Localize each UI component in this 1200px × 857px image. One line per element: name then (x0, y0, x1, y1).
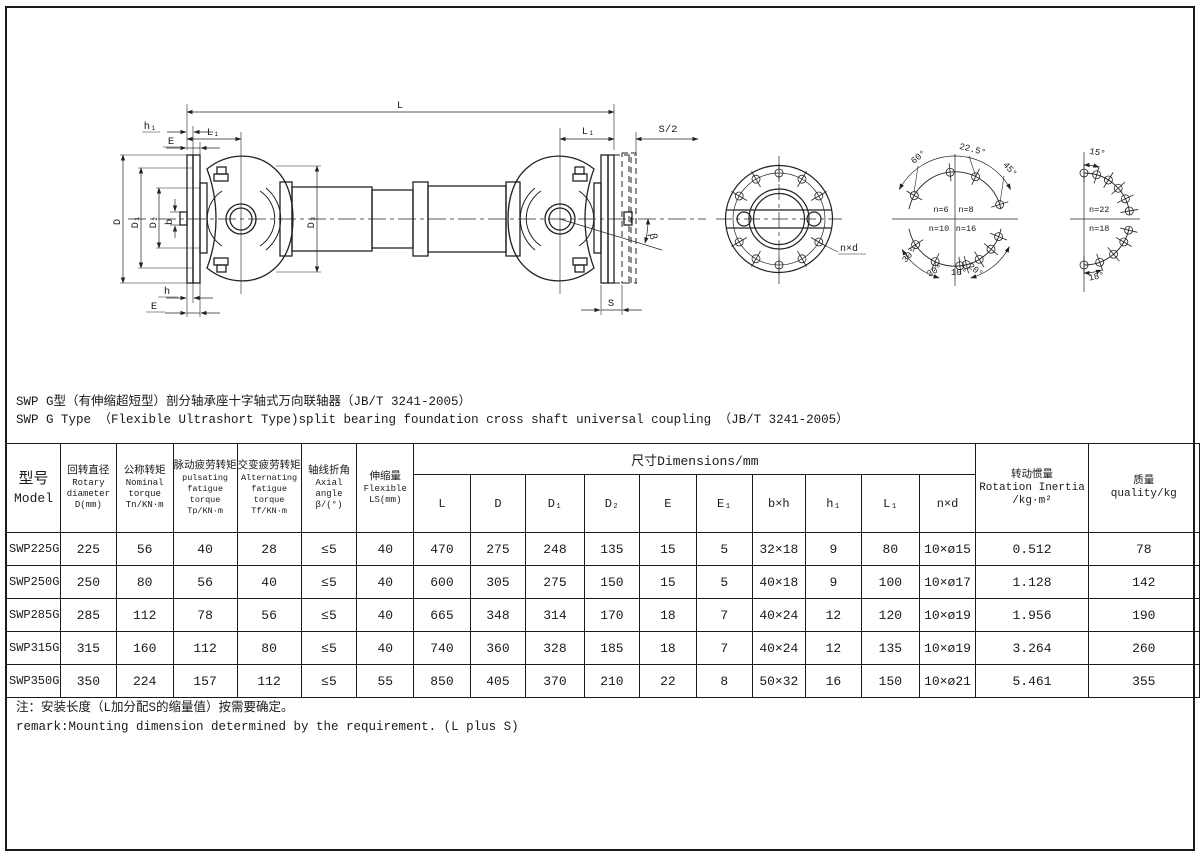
table-cell: 470 (414, 533, 471, 566)
table-cell: 50×32 (752, 665, 805, 698)
dim-label-D2: D₂ (148, 216, 160, 229)
dim-label-h: h (164, 286, 170, 298)
table-cell: 18 (640, 632, 696, 665)
table-cell: 55 (357, 665, 414, 698)
table-cell: 10×ø19 (919, 599, 976, 632)
table-cell: 56 (237, 599, 301, 632)
table-cell: 0.512 (976, 533, 1088, 566)
header-en: pulsating fatigue torque (174, 473, 237, 506)
table-cell: 15 (640, 566, 696, 599)
table-cell: 275 (470, 533, 526, 566)
table-cell: 225 (60, 533, 116, 566)
col-header-axial-angle: 轴线折角 Axial angle β/(°) (301, 444, 357, 533)
table-cell: 40 (357, 566, 414, 599)
table-cell: 9 (805, 533, 861, 566)
table-cell: SWP315G (7, 632, 61, 665)
header-zh: 轴线折角 (302, 465, 357, 478)
table-cell: 740 (414, 632, 471, 665)
table-cell: 285 (60, 599, 116, 632)
joint-centerlines (241, 128, 560, 294)
table-cell: 5 (696, 533, 752, 566)
table-cell: 9 (805, 566, 861, 599)
angle-label-45: 45° (1000, 160, 1018, 179)
table-cell: 160 (116, 632, 173, 665)
table-cell: 40 (237, 566, 301, 599)
header-en: Nominal torque (117, 478, 173, 500)
col-header-L1: L₁ (862, 475, 919, 533)
dim-label-S-half: S/2 (659, 124, 678, 136)
header-en: Axial angle (302, 478, 357, 500)
table-row: SWP315G31516011280≤54074036032818518740×… (7, 632, 1200, 665)
table-cell: SWP350G (7, 665, 61, 698)
table-cell: 370 (526, 665, 584, 698)
table-cell: 157 (173, 665, 237, 698)
table-cell: 328 (526, 632, 584, 665)
remark-block: 注：安装长度（L加分配S的缩量值）按需要确定。 remark:Mounting … (16, 699, 519, 737)
col-header-D2: D₂ (584, 475, 640, 533)
col-header-D1: D₁ (526, 475, 584, 533)
table-cell: 348 (470, 599, 526, 632)
remark-en: remark:Mounting dimension determined by … (16, 718, 519, 737)
table-cell: 10×ø19 (919, 632, 976, 665)
col-header-bxh: b×h (752, 475, 805, 533)
table-cell: 112 (116, 599, 173, 632)
title-zh: SWP G型（有伸缩超短型）剖分轴承座十字轴式万向联轴器（JB/T 3241-2… (16, 393, 849, 411)
table-cell: SWP285G (7, 599, 61, 632)
header-zh: 公称转矩 (117, 465, 173, 478)
table-cell: 142 (1088, 566, 1199, 599)
table-cell: 3.264 (976, 632, 1088, 665)
header-sym: LS(mm) (357, 495, 413, 506)
centerline (1070, 152, 1140, 292)
bolt-angle-view-2: 15° n=22 n=18 18° (1070, 147, 1140, 292)
count-label-n8: n=8 (958, 205, 973, 215)
col-header-rotation-inertia: 转动惯量 Rotation Inertia /kg·m² (976, 444, 1088, 533)
table-cell: 100 (862, 566, 919, 599)
header-zh: 脉动疲劳转矩 (174, 460, 237, 473)
col-header-pulsating-torque: 脉动疲劳转矩 pulsating fatigue torque Tp/KN·m (173, 444, 237, 533)
dim-label-L1-left: L₁ (207, 127, 220, 139)
col-header-h1: h₁ (805, 475, 861, 533)
table-body: SWP225G225564028≤54047027524813515532×18… (7, 533, 1200, 698)
header-zh: 转动惯量 (976, 469, 1087, 482)
table-row: SWP285G2851127856≤54066534831417018740×2… (7, 599, 1200, 632)
table-cell: 28 (237, 533, 301, 566)
table-row: SWP350G350224157112≤55585040537021022850… (7, 665, 1200, 698)
header-en: Flexible (357, 484, 413, 495)
header-zh: 质量 (1089, 475, 1199, 488)
table-cell: 18 (640, 599, 696, 632)
table-cell: 260 (1088, 632, 1199, 665)
table-cell: 12 (805, 632, 861, 665)
table-cell: 78 (1088, 533, 1199, 566)
col-header-rotary-diameter: 回转直径 Rotary diameter D(mm) (60, 444, 116, 533)
bolt-angle-view-1: 22.5° 60° 45° n=6 n=8 n=10 n=16 30° 30° … (892, 142, 1019, 286)
table-cell: 360 (470, 632, 526, 665)
header-zh: 回转直径 (61, 465, 116, 478)
angle-label-22-5: 22.5° (958, 142, 987, 158)
header-sym: Tp/KN·m (174, 506, 237, 517)
table-cell: 315 (60, 632, 116, 665)
table-cell: 78 (173, 599, 237, 632)
header-sym: β/(°) (302, 500, 357, 511)
table-cell: 7 (696, 632, 752, 665)
drawing-title-block: SWP G型（有伸缩超短型）剖分轴承座十字轴式万向联轴器（JB/T 3241-2… (16, 393, 849, 429)
table-cell: 850 (414, 665, 471, 698)
table-cell: 120 (862, 599, 919, 632)
table-cell: 248 (526, 533, 584, 566)
table-cell: 80 (116, 566, 173, 599)
extension-lines (120, 104, 636, 317)
table-cell: 10×ø17 (919, 566, 976, 599)
dim-label-b: b (164, 219, 176, 225)
table-cell: 40 (357, 533, 414, 566)
table-cell: 405 (470, 665, 526, 698)
dim-label-L: L (397, 100, 403, 112)
table-cell: 40 (357, 599, 414, 632)
table-cell: 40×24 (752, 599, 805, 632)
dim-label-E-bottom: E (151, 301, 157, 313)
col-header-flexible: 伸缩量 Flexible LS(mm) (357, 444, 414, 533)
table-cell: 314 (526, 599, 584, 632)
table-cell: 5 (696, 566, 752, 599)
dim-label-D3: D₃ (306, 216, 318, 229)
table-cell: 665 (414, 599, 471, 632)
angle-label-10: 10° (951, 268, 967, 278)
angle-label-30a: 30° (900, 246, 918, 265)
col-header-E: E (640, 475, 696, 533)
header-zh: 型号 (7, 470, 60, 490)
count-label-n18: n=18 (1089, 224, 1109, 234)
table-cell: 250 (60, 566, 116, 599)
table-cell: SWP250G (7, 566, 61, 599)
main-view: L h₁ L₁ E D D₁ D₂ b D₃ h E L₁ S/2 S β (112, 100, 706, 317)
table-cell: 185 (584, 632, 640, 665)
table-cell: 150 (584, 566, 640, 599)
count-label-n22: n=22 (1089, 205, 1109, 215)
col-header-quality: 质量 quality/kg (1088, 444, 1199, 533)
table-cell: 135 (862, 632, 919, 665)
header-zh: 伸缩量 (357, 471, 413, 484)
spec-table: 型号 Model 回转直径 Rotary diameter D(mm) 公称转矩… (6, 443, 1200, 698)
col-header-model: 型号 Model (7, 444, 61, 533)
table-cell: 224 (116, 665, 173, 698)
phantom-flange (614, 153, 637, 283)
header-sym: D(mm) (61, 500, 116, 511)
table-cell: 190 (1088, 599, 1199, 632)
header-sym: Tf/KN·m (238, 506, 301, 517)
col-header-L: L (414, 475, 471, 533)
table-cell: 150 (862, 665, 919, 698)
table-cell: 112 (173, 632, 237, 665)
dim-label-D1: D₁ (130, 216, 142, 229)
dim-label-nxd: n×d (840, 243, 858, 255)
table-cell: ≤5 (301, 665, 357, 698)
col-header-E1: E₁ (696, 475, 752, 533)
remark-zh: 注：安装长度（L加分配S的缩量值）按需要确定。 (16, 699, 519, 718)
header-zh: 交变疲劳转矩 (238, 460, 301, 473)
table-row: SWP250G250805640≤54060030527515015540×18… (7, 566, 1200, 599)
datasheet-page: L h₁ L₁ E D D₁ D₂ b D₃ h E L₁ S/2 S β (0, 0, 1200, 857)
dim-label-S: S (608, 298, 614, 310)
table-cell: 7 (696, 599, 752, 632)
header-en: Model (7, 490, 60, 507)
table-cell: 170 (584, 599, 640, 632)
count-label-n6: n=6 (933, 205, 948, 215)
table-cell: ≤5 (301, 566, 357, 599)
title-en: SWP G Type （Flexible Ultrashort Type)spl… (16, 411, 849, 429)
table-cell: 40 (357, 632, 414, 665)
table-cell: 80 (862, 533, 919, 566)
table-cell: 305 (470, 566, 526, 599)
table-cell: 135 (584, 533, 640, 566)
table-cell: 210 (584, 665, 640, 698)
flange-end-view: n×d (716, 156, 866, 284)
table-cell: 80 (237, 632, 301, 665)
table-cell: 15 (640, 533, 696, 566)
table-cell: 1.956 (976, 599, 1088, 632)
table-cell: 5.461 (976, 665, 1088, 698)
col-header-D: D (470, 475, 526, 533)
table-cell: 275 (526, 566, 584, 599)
angle-label-30b: 30° (925, 263, 944, 280)
table-cell: 22 (640, 665, 696, 698)
header-sym: /kg·m² (976, 495, 1087, 508)
col-header-nxd: n×d (919, 475, 976, 533)
dim-label-L1-right: L₁ (582, 126, 595, 138)
angle-label-15: 15° (1089, 147, 1107, 160)
table-cell: 12 (805, 599, 861, 632)
table-row: SWP225G225564028≤54047027524813515532×18… (7, 533, 1200, 566)
count-label-n16: n=16 (956, 224, 976, 234)
table-cell: 8 (696, 665, 752, 698)
dim-label-beta: β (646, 233, 659, 241)
table-cell: 16 (805, 665, 861, 698)
dim-label-h1: h₁ (144, 121, 157, 133)
col-header-nominal-torque: 公称转矩 Nominal torque Tn/KN·m (116, 444, 173, 533)
count-label-n10: n=10 (929, 224, 949, 234)
technical-drawing: L h₁ L₁ E D D₁ D₂ b D₃ h E L₁ S/2 S β (0, 0, 1200, 440)
table-cell: ≤5 (301, 599, 357, 632)
table-cell: 40×24 (752, 632, 805, 665)
table-cell: 355 (1088, 665, 1199, 698)
table-cell: 10×ø15 (919, 533, 976, 566)
table-cell: 32×18 (752, 533, 805, 566)
table-cell: ≤5 (301, 632, 357, 665)
table-cell: 40×18 (752, 566, 805, 599)
col-header-dimensions-span: 尺寸Dimensions/mm (414, 444, 976, 475)
table-cell: 1.128 (976, 566, 1088, 599)
table-cell: SWP225G (7, 533, 61, 566)
dim-label-E-top: E (168, 136, 174, 148)
right-universal-joint (508, 156, 594, 281)
dim-label-D: D (112, 219, 124, 225)
header-en: quality/kg (1089, 488, 1199, 501)
table-cell: 600 (414, 566, 471, 599)
table-cell: 56 (116, 533, 173, 566)
table-cell: 112 (237, 665, 301, 698)
header-en: Alternating fatigue torque (238, 473, 301, 506)
table-cell: 10×ø21 (919, 665, 976, 698)
header-en: Rotation Inertia (976, 482, 1087, 495)
table-cell: ≤5 (301, 533, 357, 566)
table-cell: 56 (173, 566, 237, 599)
header-sym: Tn/KN·m (117, 500, 173, 511)
col-header-alternating-torque: 交变疲劳转矩 Alternating fatigue torque Tf/KN·… (237, 444, 301, 533)
table-cell: 40 (173, 533, 237, 566)
header-en: Rotary diameter (61, 478, 116, 500)
angle-label-18: 18° (1088, 270, 1106, 283)
table-cell: 350 (60, 665, 116, 698)
